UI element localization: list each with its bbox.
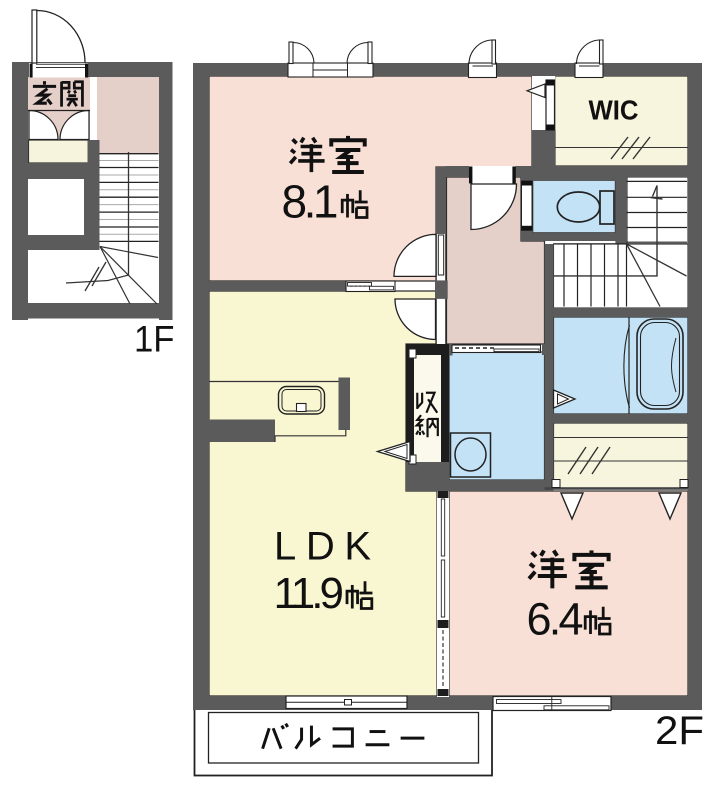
svg-text:2F: 2F xyxy=(655,709,704,753)
svg-text:1F: 1F xyxy=(134,319,175,360)
svg-text:11.9: 11.9 xyxy=(274,569,345,618)
svg-text:LDK: LDK xyxy=(274,525,371,569)
svg-text:8.1: 8.1 xyxy=(282,176,339,228)
svg-text:WIC: WIC xyxy=(589,95,639,126)
svg-text:6.4: 6.4 xyxy=(527,594,584,645)
